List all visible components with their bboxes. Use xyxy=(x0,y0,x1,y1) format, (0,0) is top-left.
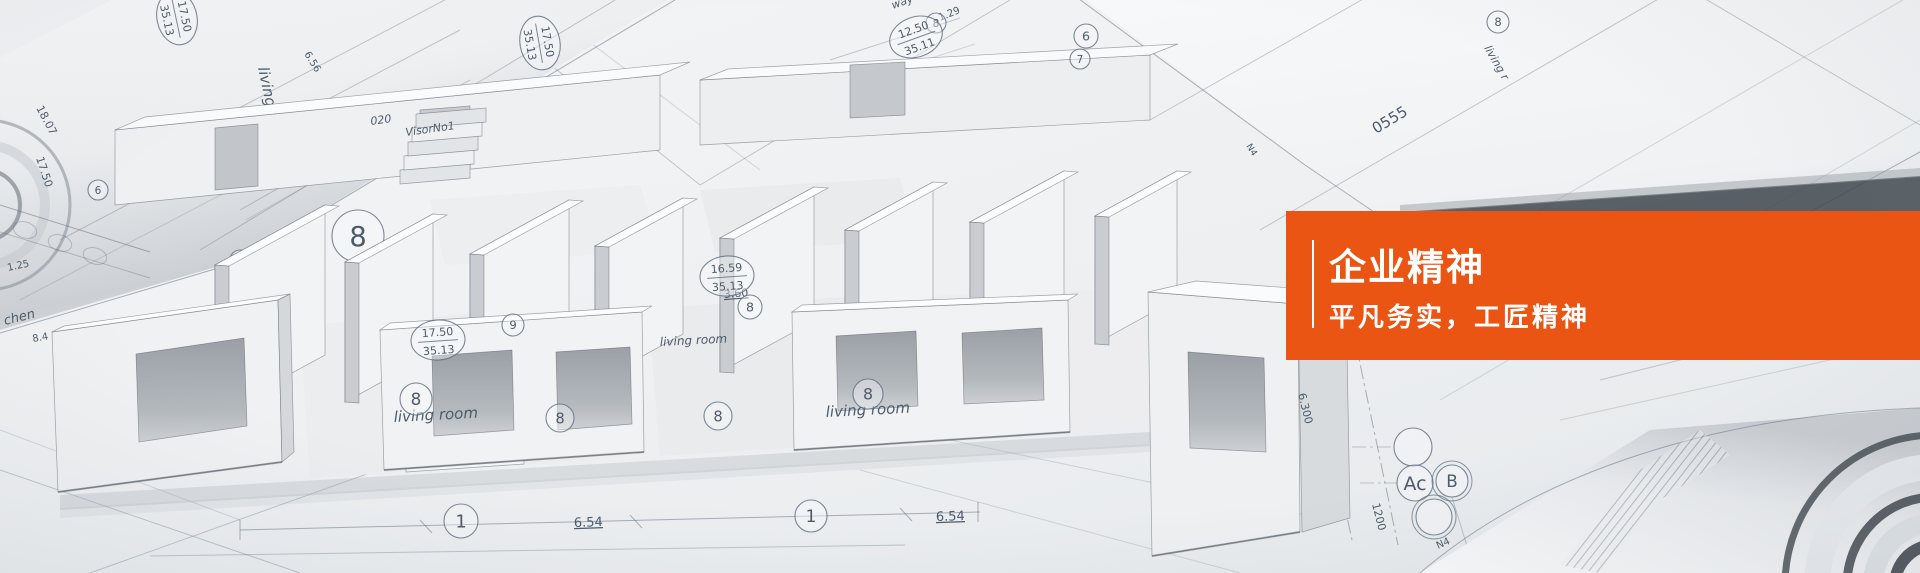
banner-subtitle: 平凡务实，工匠精神 xyxy=(1329,297,1590,334)
divider-line xyxy=(1312,240,1314,328)
hero-banner-image: living room18.0717.506.568613717.5035.13 xyxy=(0,0,1920,573)
banner-title: 企业精神 xyxy=(1329,237,1485,291)
slogan-panel: 企业精神 平凡务实，工匠精神 xyxy=(1286,211,1920,360)
